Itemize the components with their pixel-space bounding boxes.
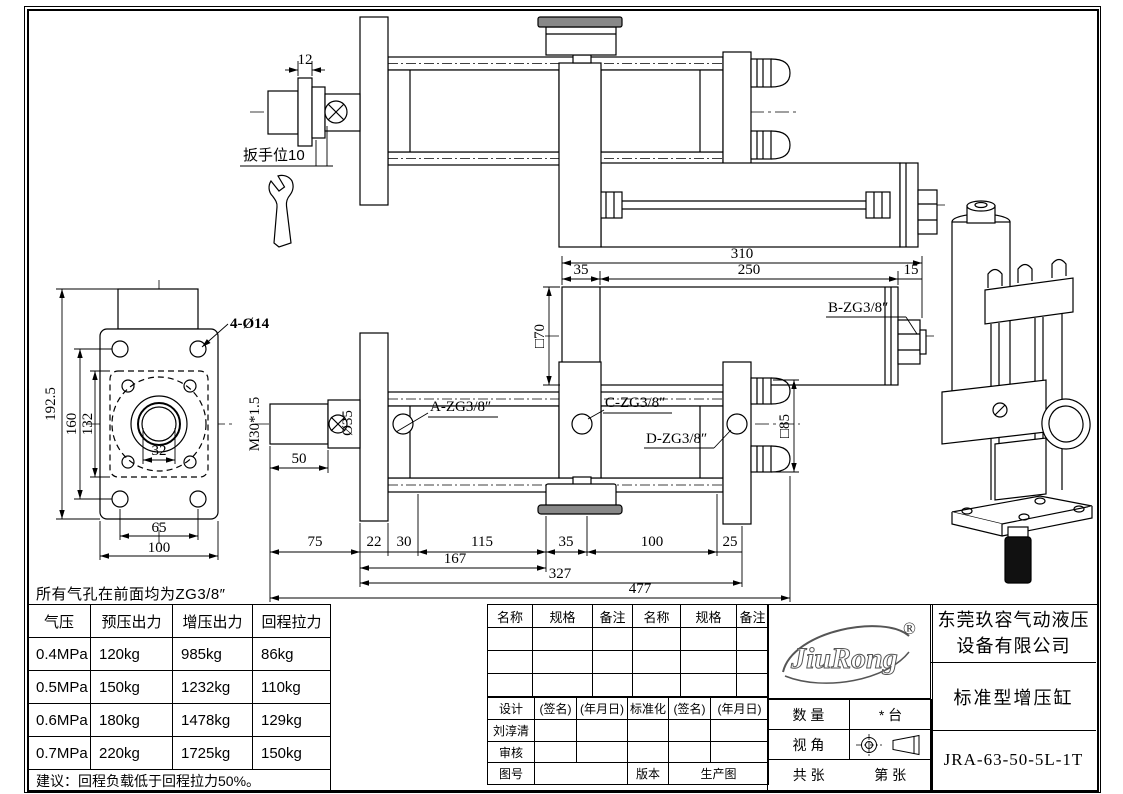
force-cell: 120kg xyxy=(91,638,173,671)
first-angle-projection-icon xyxy=(855,734,927,756)
threaded-stud xyxy=(1005,537,1031,583)
ports-note: 所有气孔在前面均为ZG3/8″ xyxy=(36,583,226,604)
signature-table: 设计 (签名) (年月日) 标准化 (签名) (年月日) 刘淳清 审核 图号 版… xyxy=(487,697,769,785)
reviewer-row: 审核 xyxy=(488,742,769,763)
force-row: 0.5MPa 150kg 1232kg 110kg xyxy=(28,671,331,704)
parts-header: 备注 xyxy=(593,605,633,628)
force-header-pressure: 气压 xyxy=(28,605,91,638)
dim-30: 30 xyxy=(397,534,412,550)
dim-15: 15 xyxy=(904,262,919,278)
force-cell: 0.4MPa xyxy=(28,638,91,671)
dim-dia35: Ø35 xyxy=(340,410,356,436)
dim-65: 65 xyxy=(152,520,167,536)
dim-22: 22 xyxy=(367,534,382,550)
parts-header: 规格 xyxy=(681,605,737,628)
sheet-number-label: 第 张 xyxy=(874,765,906,785)
signature-label: (签名) xyxy=(535,698,577,720)
oil-cup-main xyxy=(538,477,622,514)
logo-block: JiuRong ® 数 量 * 台 视 角 共 张 第 张 xyxy=(767,604,933,791)
designer-row: 刘淳清 xyxy=(488,720,769,742)
parts-header: 备注 xyxy=(737,605,769,628)
force-row: 0.4MPa 120kg 985kg 86kg xyxy=(28,638,331,671)
parts-empty-row xyxy=(488,651,769,674)
dim-100b: 100 xyxy=(148,540,171,556)
dim-192-5: 192.5 xyxy=(43,387,59,421)
dim-100: 100 xyxy=(641,534,664,550)
force-row: 0.7MPa 220kg 1725kg 150kg xyxy=(28,737,331,770)
dim-310: 310 xyxy=(731,246,754,262)
jiurong-logo: JiuRong ® xyxy=(769,608,929,696)
quantity-value: * 台 xyxy=(849,699,932,730)
company-name: 东莞玖容气动液压 设备有限公司 xyxy=(931,604,1096,663)
force-cell: 129kg xyxy=(253,704,331,737)
dim-167: 167 xyxy=(444,551,467,567)
title-block: 东莞玖容气动液压 设备有限公司 标准型增压缸 JRA-63-50-5L-1T xyxy=(930,604,1099,791)
dim-25: 25 xyxy=(723,534,738,550)
logo-cell: JiuRong ® xyxy=(767,604,931,699)
view-angle-label: 视 角 xyxy=(767,729,850,760)
main-view: A-ZG3/8″ C-ZG3/8″ D-ZG3/8″ B-ZG3/8″ 310 xyxy=(247,246,935,602)
view-angle-cell xyxy=(849,729,932,760)
force-cell: 86kg xyxy=(253,638,331,671)
port-c xyxy=(572,414,592,434)
parts-header: 名称 xyxy=(633,605,681,628)
force-advice-row: 建议：回程负载低于回程拉力50%。 xyxy=(28,770,331,792)
force-cell: 180kg xyxy=(91,704,173,737)
logo-text: JiuRong xyxy=(790,642,898,675)
date-label: (年月日) xyxy=(577,698,628,720)
dim-32: 32 xyxy=(152,443,167,459)
dome-plug-main-2 xyxy=(751,446,790,472)
dim-250: 250 xyxy=(738,262,761,278)
dim-4xd14: 4-Ø14 xyxy=(230,316,270,332)
tank-plug xyxy=(967,201,995,223)
wrench-note-label: 扳手位10 xyxy=(243,147,305,164)
force-cell: 1232kg xyxy=(173,671,253,704)
sheet-count-row: 共 张 第 张 xyxy=(767,759,932,791)
version-label: 版本 xyxy=(628,763,669,785)
dome-plug-top-2 xyxy=(751,131,790,159)
company-line2: 设备有限公司 xyxy=(957,633,1071,659)
product-name: 标准型增压缸 xyxy=(931,663,1096,731)
designer-name: 刘淳清 xyxy=(488,720,535,742)
force-cell: 1478kg xyxy=(173,704,253,737)
version-value: 生产图 xyxy=(669,763,769,785)
dim-477: 477 xyxy=(629,581,652,597)
parts-empty-row xyxy=(488,674,769,697)
design-label: 设计 xyxy=(488,698,535,720)
parts-table: 名称 规格 备注 名称 规格 备注 xyxy=(487,604,769,697)
company-line1: 东莞玖容气动液压 xyxy=(938,607,1090,633)
dim-12-label: 12 xyxy=(298,52,313,68)
date-label: (年月日) xyxy=(711,698,769,720)
force-cell: 0.5MPa xyxy=(28,671,91,704)
dim-35: 35 xyxy=(574,262,589,278)
dim-m30: M30*1.5 xyxy=(247,397,263,452)
force-cell: 150kg xyxy=(91,671,173,704)
flange-front-view: 192.5 160 132 32 65 100 4-Ø14 xyxy=(43,280,270,560)
parts-header: 名称 xyxy=(488,605,533,628)
dim-c35: 35 xyxy=(559,534,574,550)
oil-cup-top xyxy=(538,17,622,63)
force-cell: 220kg xyxy=(91,737,173,770)
dim-75: 75 xyxy=(308,534,323,550)
dim-115: 115 xyxy=(471,534,493,550)
dim-sq70: □70 xyxy=(532,324,548,348)
force-row: 0.6MPa 180kg 1478kg 129kg xyxy=(28,704,331,737)
force-header-boost: 增压出力 xyxy=(173,605,253,638)
dome-plug-top-1 xyxy=(751,59,790,87)
dim-sq85: □85 xyxy=(777,414,793,438)
port-b-label: B-ZG3/8″ xyxy=(828,300,888,316)
force-advice: 建议：回程负载低于回程拉力50%。 xyxy=(28,770,331,792)
drawing-no-label: 图号 xyxy=(488,763,535,785)
dim-327: 327 xyxy=(549,566,572,582)
force-header-row: 气压 预压出力 增压出力 回程拉力 xyxy=(28,605,331,638)
dim-132: 132 xyxy=(80,413,96,436)
quantity-label: 数 量 xyxy=(767,699,850,730)
force-cell: 1725kg xyxy=(173,737,253,770)
model-number: JRA-63-50-5L-1T xyxy=(931,731,1096,789)
port-d-label: D-ZG3/8″ xyxy=(646,431,707,447)
drawing-no-row: 图号 版本 生产图 xyxy=(488,763,769,785)
parts-empty-row xyxy=(488,628,769,651)
force-header-return: 回程拉力 xyxy=(253,605,331,638)
port-c-label: C-ZG3/8″ xyxy=(605,395,665,411)
force-cell: 110kg xyxy=(253,671,331,704)
parts-header-row: 名称 规格 备注 名称 规格 备注 xyxy=(488,605,769,628)
force-cell: 0.7MPa xyxy=(28,737,91,770)
piston-rod-top xyxy=(268,78,360,146)
sign-header-row: 设计 (签名) (年月日) 标准化 (签名) (年月日) xyxy=(488,698,769,720)
signature-label: (签名) xyxy=(669,698,711,720)
drawing-sheet: { "note": "所有气孔在前面均为ZG3/8″", "dims": { "… xyxy=(0,0,1123,794)
force-table: 气压 预压出力 增压出力 回程拉力 0.4MPa 120kg 985kg 86k… xyxy=(27,604,331,792)
isometric-view xyxy=(942,201,1095,583)
force-cell: 0.6MPa xyxy=(28,704,91,737)
top-view: 12 扳手位10 xyxy=(240,17,945,247)
parts-header: 规格 xyxy=(533,605,593,628)
force-cell: 985kg xyxy=(173,638,253,671)
dim-50: 50 xyxy=(292,451,307,467)
force-header-preload: 预压出力 xyxy=(91,605,173,638)
port-a-label: A-ZG3/8″ xyxy=(430,399,491,415)
wrench-icon xyxy=(269,175,293,247)
dim-160: 160 xyxy=(64,413,80,436)
reviewer-label: 审核 xyxy=(488,742,535,763)
registered-mark: ® xyxy=(903,619,916,638)
force-cell: 150kg xyxy=(253,737,331,770)
standardization-label: 标准化 xyxy=(628,698,669,720)
sheets-total-label: 共 张 xyxy=(793,765,825,785)
